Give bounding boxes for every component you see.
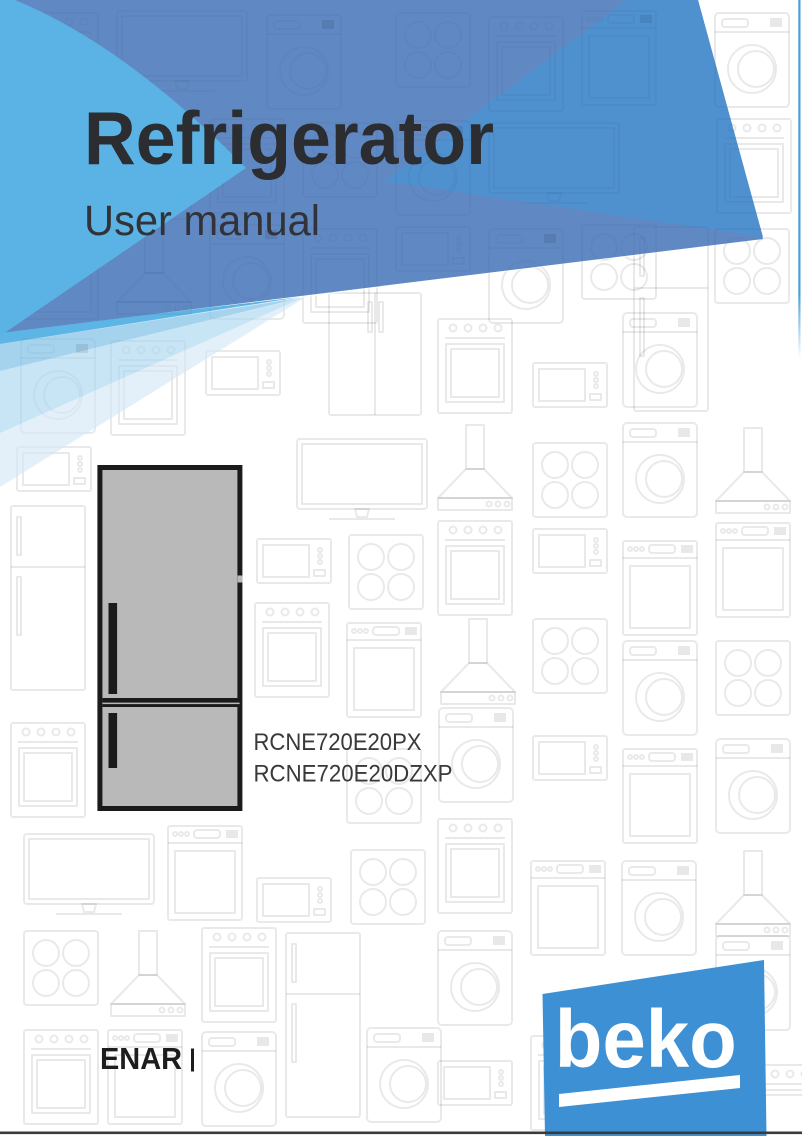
svg-text:beko: beko [555, 994, 737, 1085]
svg-text:RCNE720E20DZXP: RCNE720E20DZXP [254, 761, 453, 788]
svg-text:ENAR: ENAR [100, 1042, 182, 1076]
svg-text:Refrigerator: Refrigerator [84, 96, 494, 180]
svg-text:User manual: User manual [84, 197, 320, 245]
svg-text:RCNE720E20PX: RCNE720E20PX [254, 729, 422, 756]
